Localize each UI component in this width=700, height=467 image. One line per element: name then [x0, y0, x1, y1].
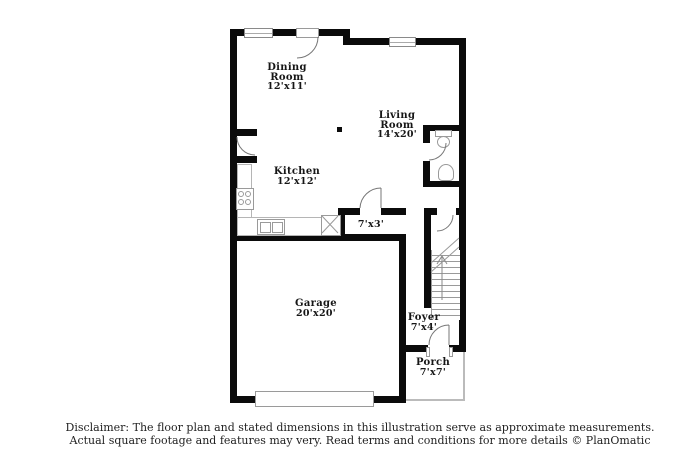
- room-label-garage: Garage 20'x20': [286, 299, 346, 318]
- room-name: Living Room: [372, 111, 422, 130]
- disclaimer-line-1: Disclaimer: The floor plan and stated di…: [20, 421, 700, 434]
- burner-icon: [238, 199, 244, 205]
- window-living: [389, 37, 416, 47]
- burner-icon: [245, 191, 251, 197]
- room-dims: 20'x20': [286, 309, 346, 319]
- window-pane: [245, 33, 272, 34]
- wall-stair-left: [424, 208, 431, 308]
- room-dims: 12'x11': [262, 82, 312, 92]
- burner-icon: [245, 199, 251, 205]
- wall-utility-top-right: [381, 208, 406, 215]
- wall-stair-top-right: [456, 208, 466, 215]
- sink-basin: [260, 222, 271, 233]
- room-label-kitchen: Kitchen 12'x12': [267, 167, 327, 186]
- window-dining: [244, 28, 273, 38]
- disclaimer: Disclaimer: The floor plan and stated di…: [20, 421, 700, 447]
- room-dims: 7'x4': [399, 323, 449, 333]
- room-name: Dining Room: [262, 63, 312, 82]
- disclaimer-line-2: Actual square footage and features may v…: [20, 434, 700, 447]
- room-label-living: Living Room 14'x20': [372, 111, 422, 140]
- wall-foyer-front-left: [399, 345, 428, 352]
- utility-door-swing-arc: [360, 188, 381, 208]
- column-marker: [337, 127, 342, 132]
- room-label-dining: Dining Room 12'x11': [262, 63, 312, 92]
- wall-kitchen-stub-upper: [230, 129, 257, 136]
- bathroom-sink-icon: [438, 164, 454, 181]
- room-dims: 14'x20': [372, 130, 422, 140]
- pantry-door-swing-arc: [237, 137, 255, 155]
- wall-bathroom-left-upper: [423, 125, 430, 143]
- room-dims: 7'x7': [408, 368, 458, 378]
- window-pane: [390, 42, 415, 43]
- entry-door-leaf: [296, 28, 319, 38]
- burner-icon: [238, 191, 244, 197]
- room-dims: 7'x3': [349, 220, 393, 230]
- wall-left-exterior: [230, 29, 237, 403]
- garage-door: [255, 391, 374, 407]
- stairs: [431, 250, 460, 320]
- room-label-utility: 7'x3': [349, 220, 393, 230]
- room-label-foyer: Foyer 7'x4': [399, 313, 449, 332]
- floor-plan: Dining Room 12'x11' Living Room 14'x20' …: [0, 0, 700, 467]
- room-dims: 12'x12': [267, 177, 327, 187]
- sink-basin: [272, 222, 283, 233]
- kitchen-sink-icon: [257, 219, 285, 235]
- water-heater-icon: [321, 215, 341, 236]
- toilet-bowl-icon: [437, 136, 450, 148]
- stove-icon: [236, 188, 254, 210]
- wall-bathroom-bottom: [423, 181, 459, 187]
- wall-kitchen-stub-lower: [230, 156, 257, 163]
- entry-door-swing-arc: [297, 37, 318, 58]
- wall-right-exterior: [459, 38, 466, 352]
- wall-utility-top-left: [338, 208, 360, 215]
- room-label-porch: Porch 7'x7': [408, 358, 458, 377]
- stair-door-swing-arc: [437, 215, 453, 231]
